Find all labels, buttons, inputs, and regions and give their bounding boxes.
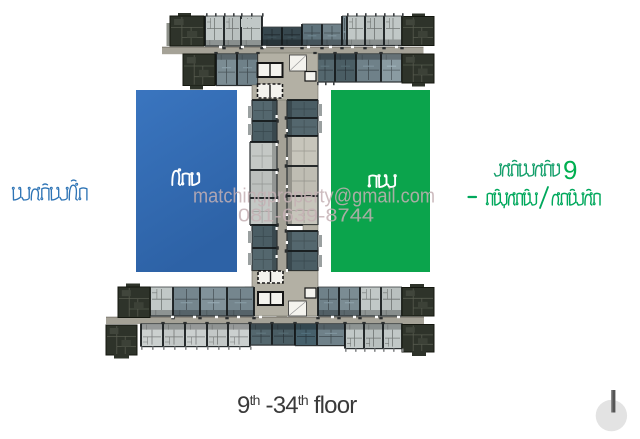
svg-text:matchingproperty@gmail.com: matchingproperty@gmail.com [193, 186, 435, 208]
svg-text:081-639-8744: 081-639-8744 [238, 206, 374, 226]
svg-text:9: 9 [563, 155, 577, 185]
